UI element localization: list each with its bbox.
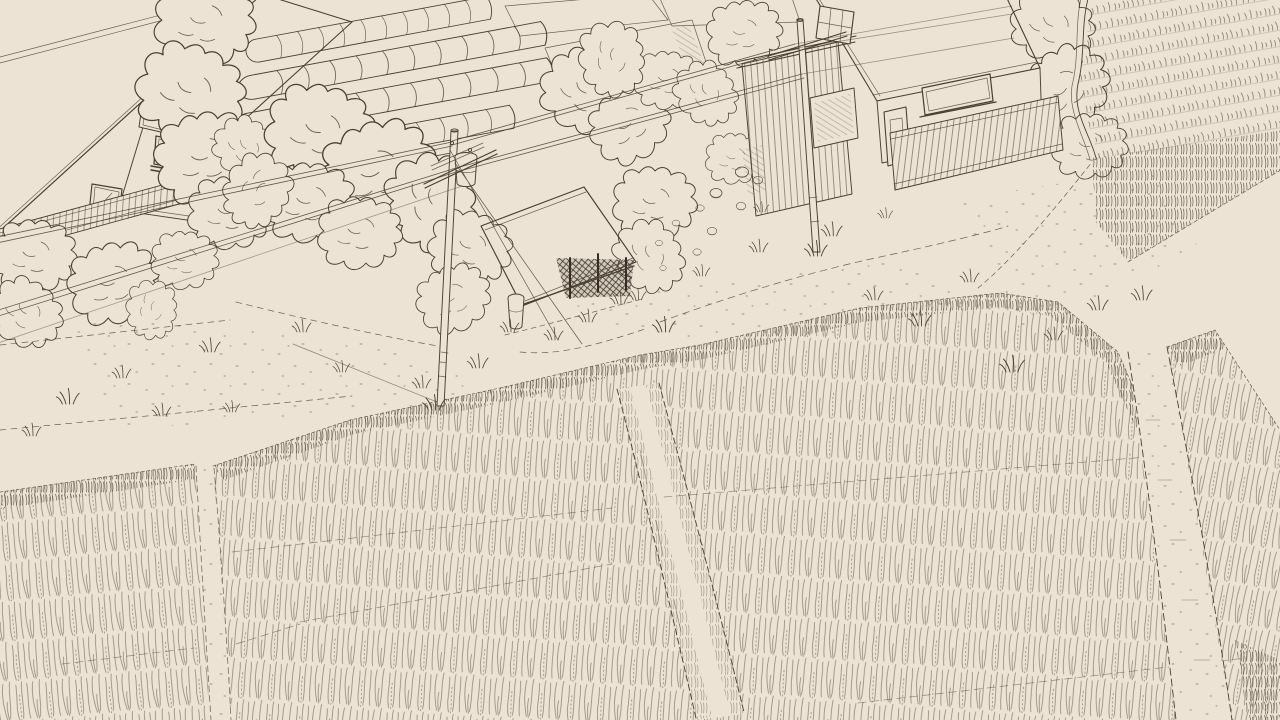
rice-paddy-left	[0, 464, 210, 720]
skylight-panel	[816, 6, 854, 44]
illustration-canvas	[0, 0, 1280, 720]
illustration-stage	[0, 0, 1280, 720]
sign-board	[810, 88, 858, 148]
